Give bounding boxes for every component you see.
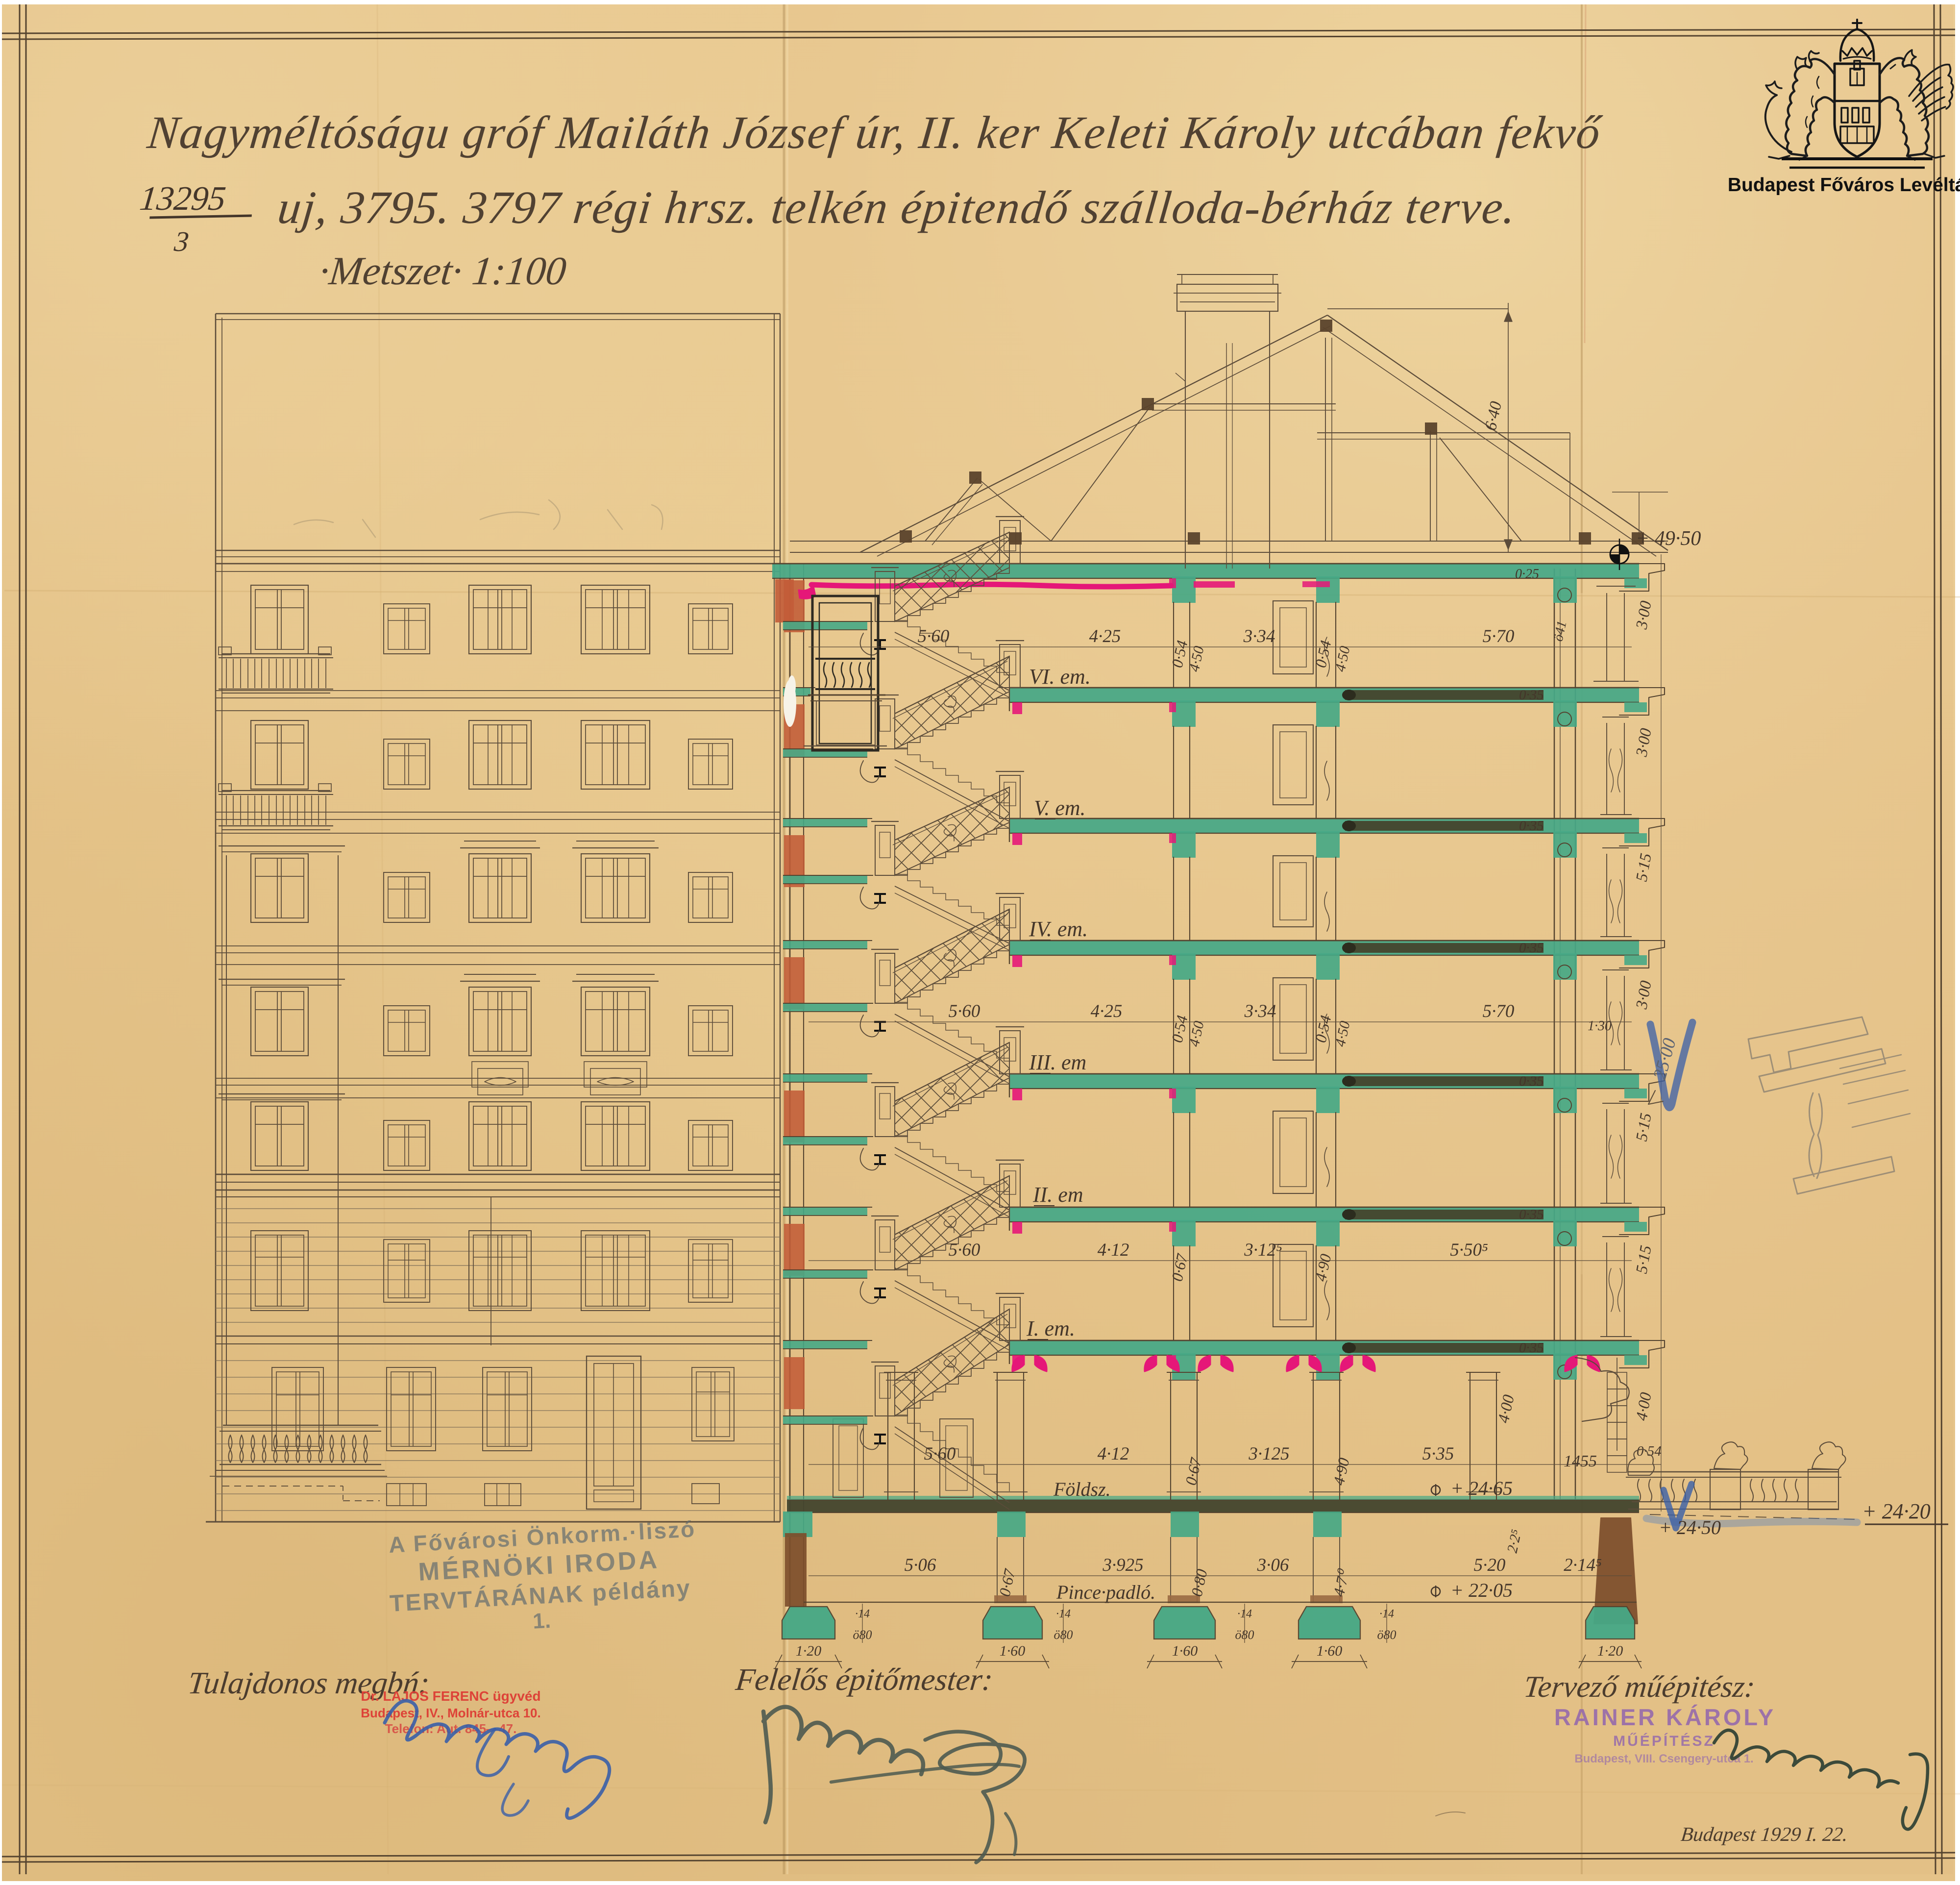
svg-text:Földsz.: Földsz. [1053, 1478, 1111, 1500]
svg-text:Tervező műépitész:: Tervező műépitész: [1522, 1670, 1757, 1704]
svg-text:0·35: 0·35 [1519, 1340, 1544, 1356]
svg-text:0·25: 0·25 [1515, 567, 1539, 582]
svg-text:1·20: 1·20 [796, 1643, 822, 1659]
svg-text:5·60: 5·60 [949, 1001, 980, 1021]
svg-text:5·70: 5·70 [1483, 1001, 1515, 1021]
svg-text:13295: 13295 [138, 179, 227, 218]
svg-text:0·35: 0·35 [1519, 1073, 1544, 1089]
svg-text:Dr. LAJOS FERENC ügyvéd: Dr. LAJOS FERENC ügyvéd [361, 1688, 540, 1704]
svg-text:3·34: 3·34 [1243, 626, 1275, 646]
svg-text:0·35: 0·35 [1519, 687, 1544, 703]
svg-text:1·60: 1·60 [1317, 1643, 1343, 1659]
svg-text:1.: 1. [532, 1609, 551, 1634]
svg-text:·Metszet· 1:100: ·Metszet· 1:100 [317, 248, 568, 293]
svg-text:5·60: 5·60 [924, 1444, 956, 1464]
svg-text:uj, 3795. 3797 régi hrsz.: uj, 3795. 3797 régi hrsz. telkén épitend… [275, 181, 1519, 233]
svg-text:3·12⁵: 3·12⁵ [1244, 1240, 1282, 1260]
svg-text:1·60: 1·60 [1000, 1643, 1026, 1659]
svg-text:5·50⁵: 5·50⁵ [1450, 1240, 1488, 1260]
svg-text:Budapest, VIII. Csengery-utca: Budapest, VIII. Csengery-utca 1. [1574, 1752, 1753, 1765]
svg-text:III. em: III. em [1029, 1050, 1086, 1074]
svg-text:3·125: 3·125 [1248, 1444, 1289, 1464]
svg-text:+ 24·20: + 24·20 [1862, 1499, 1931, 1523]
svg-text:4·25: 4·25 [1091, 1001, 1123, 1021]
svg-text:Nagyméltóságu gróf Mailáth: Nagyméltóságu gróf Mailáth József úr, II… [145, 106, 1604, 158]
svg-text:5·06: 5·06 [905, 1555, 936, 1575]
svg-text:4·12: 4·12 [1098, 1444, 1129, 1464]
svg-text:3·925: 3·925 [1102, 1555, 1143, 1575]
svg-text:+ 22·05: + 22·05 [1450, 1579, 1513, 1601]
svg-text:I. em.: I. em. [1026, 1316, 1075, 1340]
svg-text:3·34: 3·34 [1244, 1001, 1276, 1021]
svg-text:V. em.: V. em. [1034, 796, 1086, 820]
svg-text:2·14⁵: 2·14⁵ [1564, 1555, 1602, 1575]
svg-text:1·30: 1·30 [1588, 1018, 1612, 1034]
svg-text:Budapest 1929 I. 22.: Budapest 1929 I. 22. [1680, 1823, 1849, 1845]
svg-text:3·06: 3·06 [1257, 1555, 1289, 1575]
svg-text:0·35: 0·35 [1519, 1207, 1544, 1222]
svg-text:0·54: 0·54 [1637, 1443, 1662, 1459]
svg-text:5·35: 5·35 [1422, 1444, 1454, 1464]
svg-text:+ 24·50: + 24·50 [1659, 1516, 1721, 1538]
svg-text:1455: 1455 [1564, 1452, 1597, 1470]
svg-text:1·60: 1·60 [1172, 1643, 1198, 1659]
svg-text:4·25: 4·25 [1089, 626, 1121, 646]
svg-text:+ 49·50: + 49·50 [1636, 527, 1701, 550]
svg-text:IV. em.: IV. em. [1029, 917, 1088, 941]
svg-text:Pince·padló.: Pince·padló. [1056, 1581, 1155, 1603]
svg-text:Budapest Főváros Levéltára: Budapest Főváros Levéltára [1728, 174, 1960, 196]
svg-text:VI. em.: VI. em. [1029, 665, 1091, 689]
svg-text:Felelős épitőmester:: Felelős épitőmester: [734, 1662, 995, 1697]
svg-text:5·60: 5·60 [949, 1240, 980, 1260]
svg-text:5·70: 5·70 [1483, 626, 1515, 646]
svg-text:II. em: II. em [1032, 1183, 1083, 1207]
svg-text:0·35: 0·35 [1519, 818, 1544, 834]
svg-text:+ 24·65: + 24·65 [1450, 1477, 1513, 1499]
svg-text:MŰÉPÍTÉSZ: MŰÉPÍTÉSZ [1613, 1733, 1715, 1749]
svg-text:4·12: 4·12 [1098, 1240, 1129, 1260]
svg-text:5·60: 5·60 [918, 626, 950, 646]
svg-text:5·20: 5·20 [1474, 1555, 1506, 1575]
svg-text:0·35: 0·35 [1519, 940, 1544, 956]
svg-text:1·20: 1·20 [1597, 1643, 1623, 1659]
svg-text:RAINER KÁROLY: RAINER KÁROLY [1554, 1704, 1776, 1730]
